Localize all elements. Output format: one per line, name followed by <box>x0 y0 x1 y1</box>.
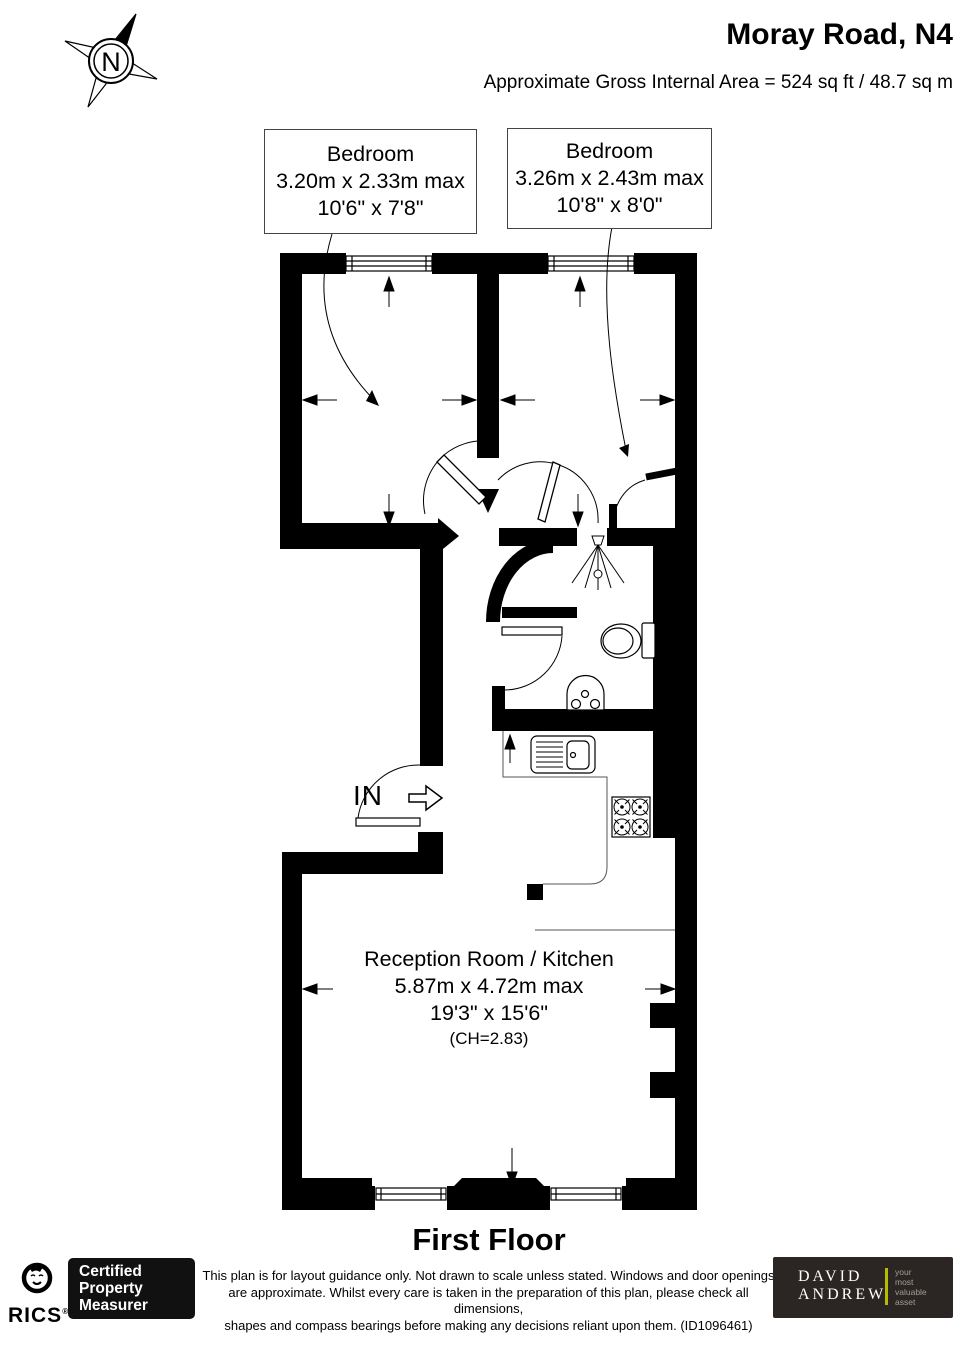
window-top-left <box>346 256 432 271</box>
page-title: Moray Road, N4 <box>726 18 953 52</box>
entry-arrow-icon <box>409 786 442 810</box>
bedroom2-name: Bedroom <box>566 138 653 165</box>
compass-north-letter: N <box>101 47 121 77</box>
reception-imperial: 19'3" x 15'6" <box>328 1000 650 1027</box>
bathroom-upper-door <box>612 471 677 523</box>
basin-icon <box>567 676 604 710</box>
agent-name-line2: ANDREW <box>798 1286 886 1304</box>
reception-label: Reception Room / Kitchen 5.87m x 4.72m m… <box>328 946 650 1051</box>
rics-lion-icon <box>13 1261 59 1297</box>
agent-tagline-2: most <box>895 1277 927 1287</box>
agent-tagline-3: valuable <box>895 1287 927 1297</box>
cpm-line2: Property <box>79 1280 195 1297</box>
cpm-line1: Certified <box>79 1263 195 1280</box>
kitchen-sink-icon <box>531 736 595 773</box>
compass-icon: N <box>65 14 157 107</box>
window-bottom-left <box>376 1188 446 1200</box>
agent-tagline-4: asset <box>895 1297 927 1307</box>
disclaimer-line1: This plan is for layout guidance only. N… <box>200 1268 777 1285</box>
floor-plan-drawing: N <box>0 0 980 1345</box>
bathroom-door <box>502 627 562 690</box>
bedroom2-metric: 3.26m x 2.43m max <box>515 165 704 192</box>
bedroom2-label: Bedroom 3.26m x 2.43m max 10'8" x 8'0" <box>507 128 712 229</box>
gross-area-note: Approximate Gross Internal Area = 524 sq… <box>484 72 953 94</box>
entrance-label: IN <box>353 780 383 812</box>
reception-name: Reception Room / Kitchen <box>328 946 650 973</box>
bedroom1-name: Bedroom <box>327 141 414 168</box>
bedroom1-metric: 3.20m x 2.33m max <box>276 168 465 195</box>
floor-name: First Floor <box>339 1222 639 1258</box>
reception-ceiling-height: (CH=2.83) <box>328 1027 650 1051</box>
bedroom1-imperial: 10'6" x 7'8" <box>318 195 424 222</box>
agent-accent-bar <box>885 1268 888 1305</box>
hob-icon <box>612 797 650 837</box>
walls <box>280 253 697 1210</box>
window-bottom-right <box>551 1188 621 1200</box>
bedroom2-imperial: 10'8" x 8'0" <box>557 192 663 219</box>
floorplan-page: N <box>0 0 980 1345</box>
certified-property-measurer-badge: Certified Property Measurer <box>68 1258 195 1319</box>
agent-name: DAVID ANDREW <box>798 1268 886 1304</box>
agent-tagline-1: your <box>895 1267 927 1277</box>
disclaimer-line3: shapes and compass bearings before makin… <box>200 1318 777 1335</box>
disclaimer-text: This plan is for layout guidance only. N… <box>200 1268 777 1334</box>
rics-wordmark: RICS® <box>8 1302 64 1326</box>
window-top-right <box>548 256 634 271</box>
rics-logo: RICS® <box>8 1261 64 1326</box>
toilet-icon <box>601 623 655 658</box>
bedroom1-label: Bedroom 3.20m x 2.33m max 10'6" x 7'8" <box>264 129 477 234</box>
reception-metric: 5.87m x 4.72m max <box>328 973 650 1000</box>
agent-name-line1: DAVID <box>798 1268 886 1286</box>
bedroom-doors <box>424 441 599 523</box>
cpm-line3: Measurer <box>79 1297 195 1314</box>
agent-tagline: your most valuable asset <box>895 1267 927 1307</box>
disclaimer-line2: are approximate. Whilst every care is ta… <box>200 1285 777 1318</box>
agent-logo: DAVID ANDREW your most valuable asset <box>773 1257 953 1318</box>
